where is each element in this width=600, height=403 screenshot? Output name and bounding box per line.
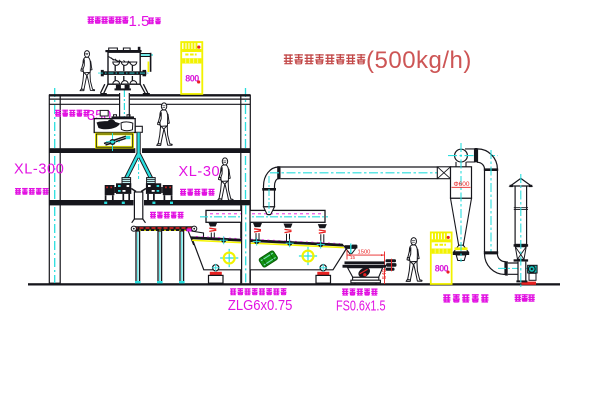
- svg-text:FS0.6x1.5: FS0.6x1.5: [336, 297, 386, 314]
- svg-text:1.5: 1.5: [129, 13, 150, 30]
- svg-text:1500: 1500: [358, 250, 371, 256]
- svg-text:(500kg/h): (500kg/h): [366, 47, 472, 74]
- svg-text:540: 540: [382, 269, 388, 279]
- svg-text:XL-300: XL-300: [14, 162, 64, 178]
- svg-text:ZLG6x0.75: ZLG6x0.75: [228, 296, 293, 313]
- svg-text:15: 15: [350, 255, 356, 260]
- svg-text:Φ600: Φ600: [454, 181, 470, 188]
